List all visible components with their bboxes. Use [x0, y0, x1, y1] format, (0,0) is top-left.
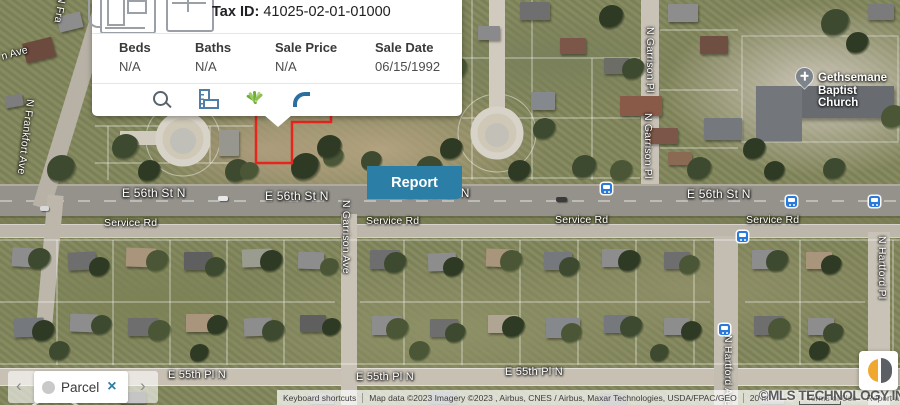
bus-stop-icon — [719, 324, 730, 335]
mls-watermark: ©MLS TECHNOLOGY INC 2025 — [759, 388, 900, 403]
property-field: BedsN/A — [119, 39, 195, 76]
field-value: N/A — [195, 57, 275, 76]
tax-id-label: Tax ID: — [212, 4, 259, 20]
carousel-next-arrow[interactable]: › — [140, 377, 146, 395]
close-icon[interactable]: × — [107, 379, 116, 395]
popup-divider — [92, 33, 462, 34]
field-label: Baths — [195, 39, 275, 57]
measure-icon[interactable] — [190, 83, 222, 116]
map-app-window: Gethsemane Baptist Church Tax ID: 41025-… — [0, 0, 900, 405]
tax-id-line: Tax ID: 41025-02-01-01000 — [212, 4, 391, 20]
field-label: Sale Price — [275, 39, 375, 57]
layer-dot-icon — [42, 381, 55, 394]
field-value: N/A — [275, 57, 375, 76]
bus-stop-icon — [601, 183, 612, 194]
floorplan-icon — [100, 0, 156, 34]
property-fields: BedsN/ABathsN/ASale PriceN/ASale Date06/… — [119, 39, 485, 76]
room-layout-icon — [166, 0, 214, 32]
layer-carousel: ‹ Parcel × › — [8, 371, 158, 403]
property-field: BathsN/A — [195, 39, 275, 76]
tax-id-value: 41025-02-01-01000 — [263, 4, 390, 20]
search-icon[interactable] — [145, 83, 177, 116]
bus-stop-icon — [737, 231, 748, 242]
map-style-toggle[interactable] — [859, 351, 898, 390]
layer-label: Parcel — [61, 380, 99, 395]
field-label: Sale Date — [375, 39, 485, 57]
bus-stop-icon — [869, 196, 880, 207]
property-field: Sale Date06/15/1992 — [375, 39, 485, 76]
parcel-layer-chip[interactable]: Parcel × — [34, 371, 128, 403]
property-info-popup: Tax ID: 41025-02-01-01000 BedsN/ABathsN/… — [92, 0, 462, 116]
popup-toolbar: Report — [92, 83, 462, 116]
curve-icon[interactable] — [285, 83, 317, 116]
bus-stop-icon — [786, 196, 797, 207]
report-button[interactable]: Report — [367, 166, 462, 199]
church-poi-label: Gethsemane Baptist Church — [818, 72, 900, 110]
keyboard-shortcuts-link[interactable]: Keyboard shortcuts — [277, 393, 362, 403]
map-attribution-bar: Keyboard shortcuts Map data ©2023 Imager… — [277, 390, 900, 405]
map-data-credits: Map data ©2023 Imagery ©2023 , Airbus, C… — [363, 393, 743, 403]
vegetation-icon[interactable] — [239, 83, 271, 116]
popup-pointer — [264, 115, 292, 127]
field-value: N/A — [119, 57, 195, 76]
field-label: Beds — [119, 39, 195, 57]
watermark-area: Terms of Use Report a map error ©MLS TEC… — [775, 390, 900, 405]
property-field: Sale PriceN/A — [275, 39, 375, 76]
carousel-prev-arrow[interactable]: ‹ — [16, 377, 22, 395]
field-value: 06/15/1992 — [375, 57, 485, 76]
